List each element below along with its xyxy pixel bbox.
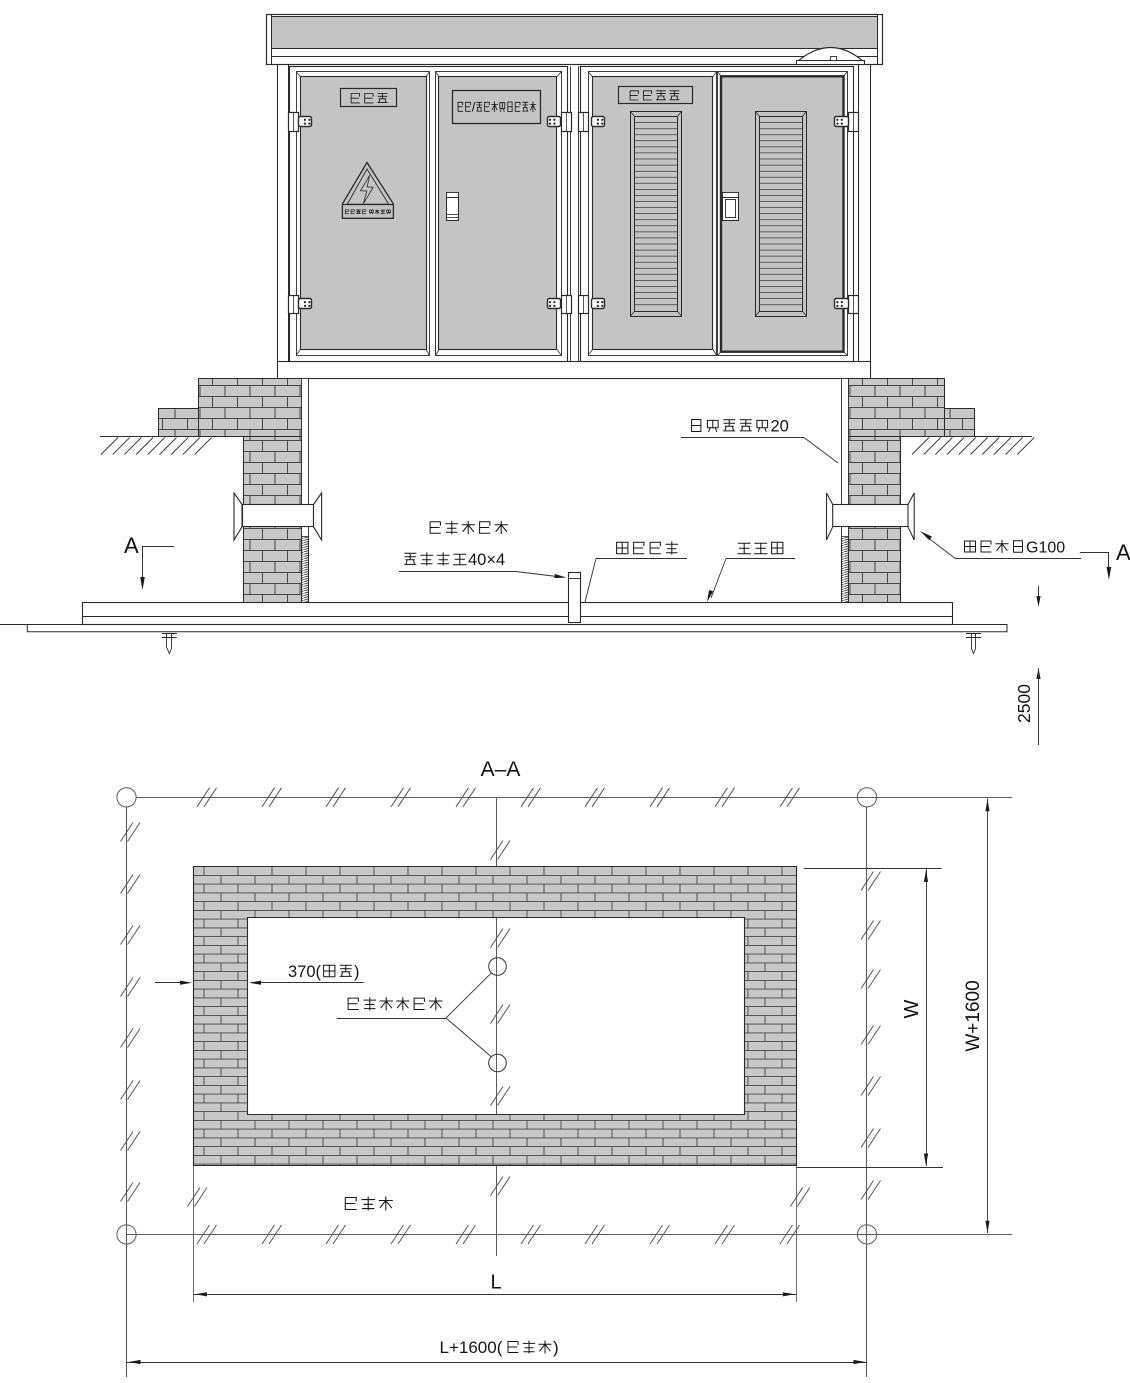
svg-text:2500: 2500 <box>1014 684 1034 723</box>
svg-text:20: 20 <box>771 417 789 435</box>
svg-text:/: / <box>472 100 476 115</box>
svg-text:L: L <box>490 1272 501 1294</box>
svg-text:W+1600: W+1600 <box>963 980 984 1051</box>
svg-text:G100: G100 <box>1026 539 1065 556</box>
svg-text:L+1600(: L+1600( <box>440 1338 503 1357</box>
svg-text:A: A <box>1116 540 1130 565</box>
svg-text:W: W <box>901 999 923 1018</box>
svg-text:A: A <box>124 533 139 558</box>
svg-text:): ) <box>354 963 360 981</box>
svg-text:): ) <box>553 1338 559 1357</box>
svg-text:A–A: A–A <box>481 758 521 781</box>
svg-text:370(: 370( <box>288 963 322 981</box>
svg-text:40×4: 40×4 <box>468 551 505 569</box>
